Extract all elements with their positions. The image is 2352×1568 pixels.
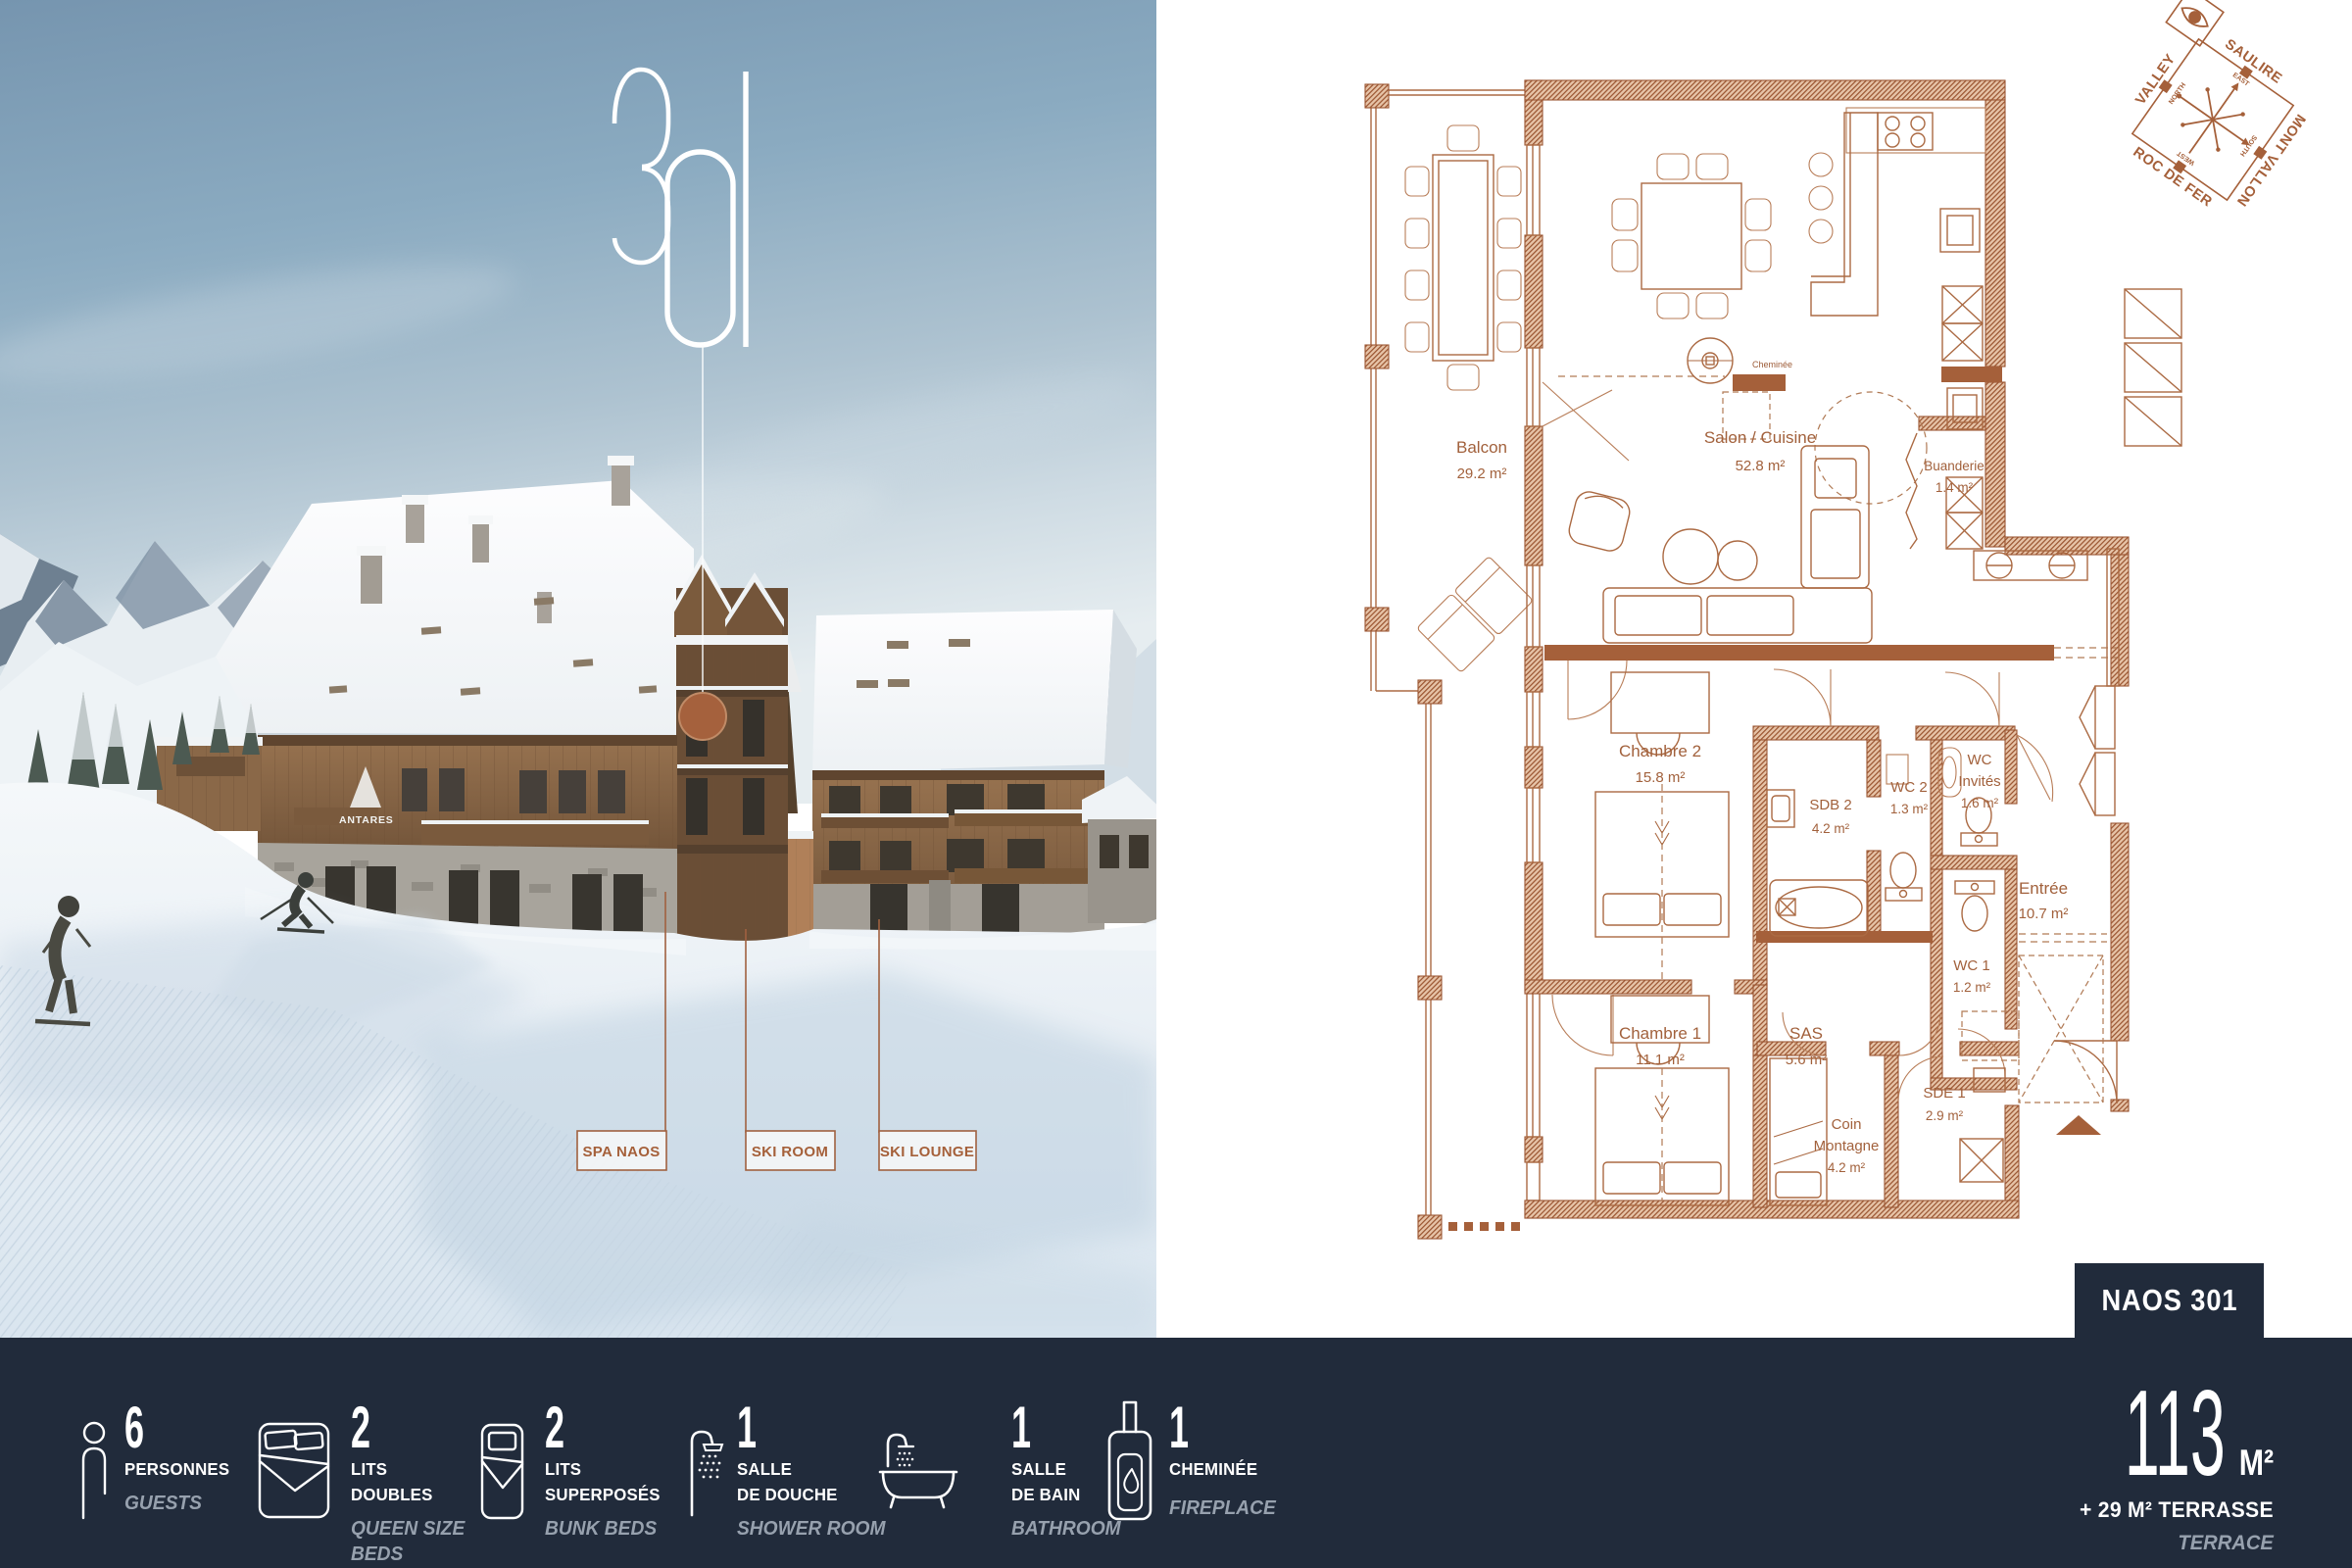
- svg-text:2.9 m²: 2.9 m²: [1926, 1108, 1964, 1123]
- svg-text:4.2 m²: 4.2 m²: [1812, 821, 1850, 836]
- svg-text:SKI LOUNGE: SKI LOUNGE: [880, 1144, 974, 1160]
- svg-text:Montagne: Montagne: [1814, 1138, 1880, 1154]
- svg-text:Balcon: Balcon: [1456, 438, 1507, 457]
- svg-text:1.3 m²: 1.3 m²: [1890, 802, 1929, 816]
- svg-text:11.1 m²: 11.1 m²: [1636, 1052, 1685, 1068]
- svg-text:SDB 2: SDB 2: [1809, 797, 1851, 813]
- svg-text:WC 2: WC 2: [1890, 779, 1928, 796]
- svg-text:Chambre 1: Chambre 1: [1619, 1024, 1701, 1043]
- svg-text:SPA NAOS: SPA NAOS: [582, 1144, 660, 1160]
- svg-text:Chambre 2: Chambre 2: [1619, 742, 1701, 760]
- svg-text:10.7 m²: 10.7 m²: [2019, 906, 2069, 922]
- svg-text:Invités: Invités: [1958, 773, 2000, 790]
- svg-text:WC: WC: [1968, 752, 1992, 768]
- svg-text:1.2 m²: 1.2 m²: [1953, 980, 1991, 995]
- svg-text:15.8 m²: 15.8 m²: [1636, 769, 1686, 786]
- svg-text:52.8 m²: 52.8 m²: [1736, 458, 1786, 474]
- svg-text:Salon / Cuisine: Salon / Cuisine: [1704, 428, 1816, 447]
- svg-text:1.6 m²: 1.6 m²: [1961, 796, 1999, 810]
- svg-text:4.2 m²: 4.2 m²: [1828, 1160, 1866, 1175]
- svg-text:29.2 m²: 29.2 m²: [1457, 465, 1507, 482]
- svg-text:SDE 1: SDE 1: [1923, 1085, 1965, 1102]
- svg-text:WC 1: WC 1: [1953, 957, 1990, 974]
- svg-text:5.6 m²: 5.6 m²: [1786, 1052, 1828, 1068]
- svg-text:Coin: Coin: [1832, 1116, 1862, 1133]
- svg-text:ANTARES: ANTARES: [339, 814, 394, 826]
- svg-text:SAS: SAS: [1789, 1024, 1823, 1043]
- svg-text:Cheminée: Cheminée: [1752, 360, 1792, 369]
- svg-text:MONT VALLON: MONT VALLON: [2233, 111, 2309, 209]
- svg-text:SKI ROOM: SKI ROOM: [752, 1144, 828, 1160]
- svg-text:Entrée: Entrée: [2019, 879, 2068, 898]
- svg-text:ROC DE FER: ROC DE FER: [2130, 144, 2215, 210]
- svg-text:Buanderie: Buanderie: [1924, 459, 1984, 473]
- svg-text:1.4 m²: 1.4 m²: [1935, 480, 1974, 495]
